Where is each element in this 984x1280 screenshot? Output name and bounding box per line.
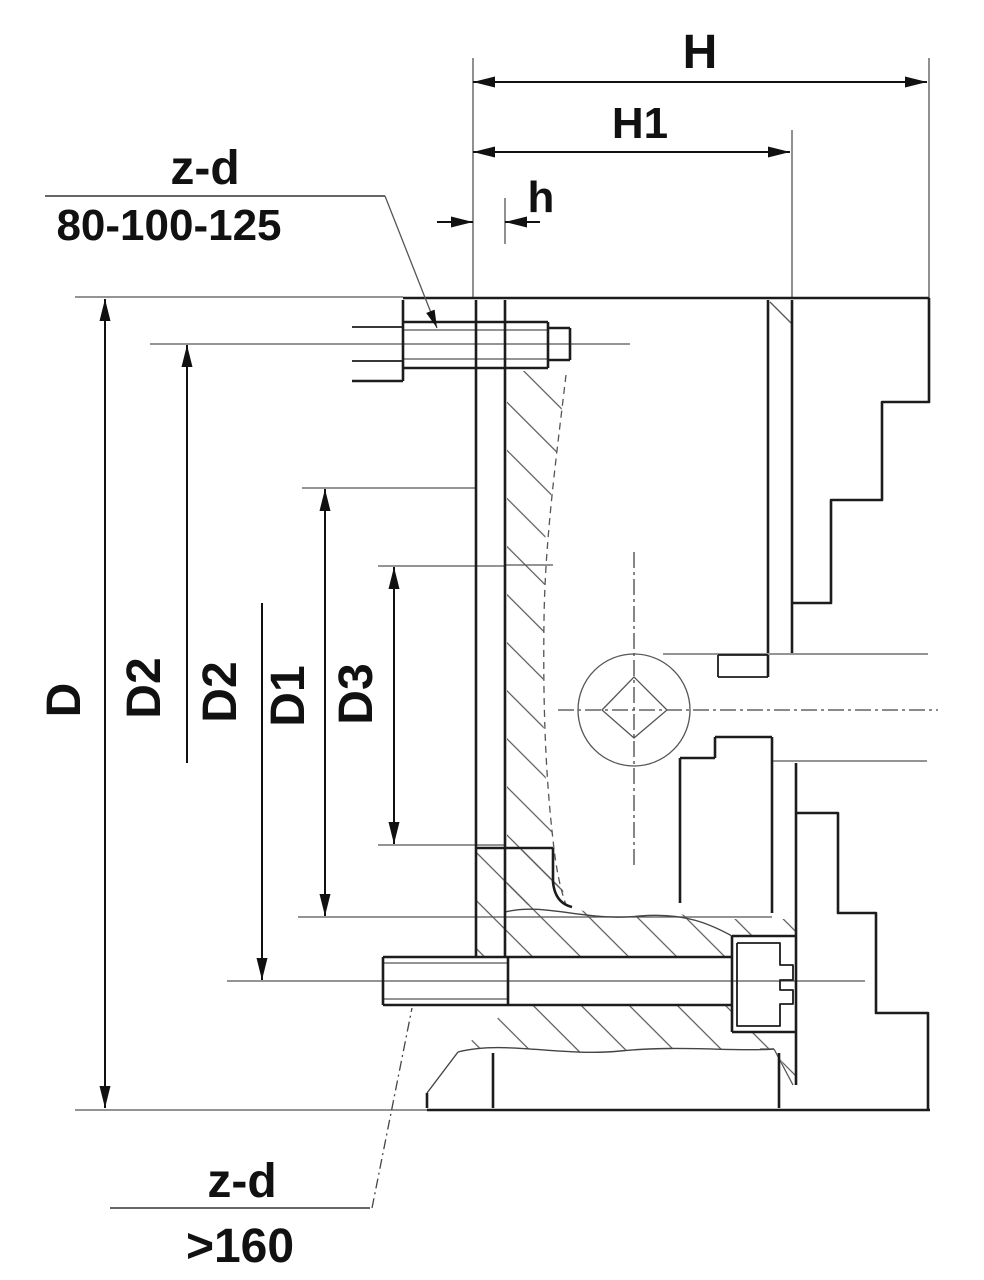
dimension-D1: D1: [262, 489, 331, 916]
dimension-H-label: H: [683, 26, 718, 79]
technical-drawing: H H1 h D D2 D2 D1: [0, 0, 984, 1280]
dimension-h-label: h: [528, 173, 555, 222]
arrowhead: [320, 894, 331, 916]
callout-top-arrowhead: [426, 310, 437, 328]
drawing-canvas: H H1 h D D2 D2 D1: [0, 0, 984, 1280]
centerlines: [558, 552, 938, 866]
dimension-H1-label: H1: [612, 99, 668, 148]
arrowhead: [389, 567, 400, 589]
arrowhead: [257, 958, 268, 980]
dimension-h: h: [437, 173, 554, 228]
hatch-band-above-bolt: [476, 905, 732, 957]
part-outline: [352, 298, 930, 1110]
dimension-D: D: [38, 299, 111, 1108]
arrowhead: [905, 77, 927, 88]
dimension-D1-label: D1: [262, 665, 315, 726]
dimension-D2-lower: D2: [194, 603, 268, 980]
dimension-H1: H1: [473, 99, 790, 158]
arrowhead: [473, 77, 495, 88]
dimension-D3: D3: [330, 567, 400, 844]
dimension-D-label: D: [38, 683, 91, 718]
arrowhead: [473, 147, 495, 158]
dimension-D2-upper: D2: [118, 345, 193, 763]
callout-top-leader: [385, 196, 437, 328]
callout-bottom-label: z-d: [207, 1155, 276, 1208]
hatch-above-tnut: [732, 919, 796, 936]
hatch-band-below-bolt: [458, 1005, 796, 1085]
callout-top: z-d 80-100-125: [45, 142, 437, 328]
arrowhead: [182, 345, 193, 367]
callout-bottom-leader: [372, 1008, 412, 1208]
arrowhead: [100, 299, 111, 321]
callout-top-label: z-d: [170, 142, 239, 195]
dimension-D2u-label: D2: [118, 657, 171, 718]
arrowhead: [389, 822, 400, 844]
callout-bottom: z-d >160: [110, 1008, 412, 1273]
callout-bottom-range: >160: [186, 1220, 294, 1273]
dimension-D2l-label: D2: [194, 661, 247, 722]
arrowhead: [451, 217, 473, 228]
dimension-H: H: [473, 26, 927, 88]
arrowhead: [768, 147, 790, 158]
callout-top-range: 80-100-125: [56, 201, 281, 250]
dimension-D3-label: D3: [330, 663, 383, 724]
arrowhead: [320, 489, 331, 511]
arrowhead: [505, 217, 527, 228]
arrowhead: [100, 1086, 111, 1108]
